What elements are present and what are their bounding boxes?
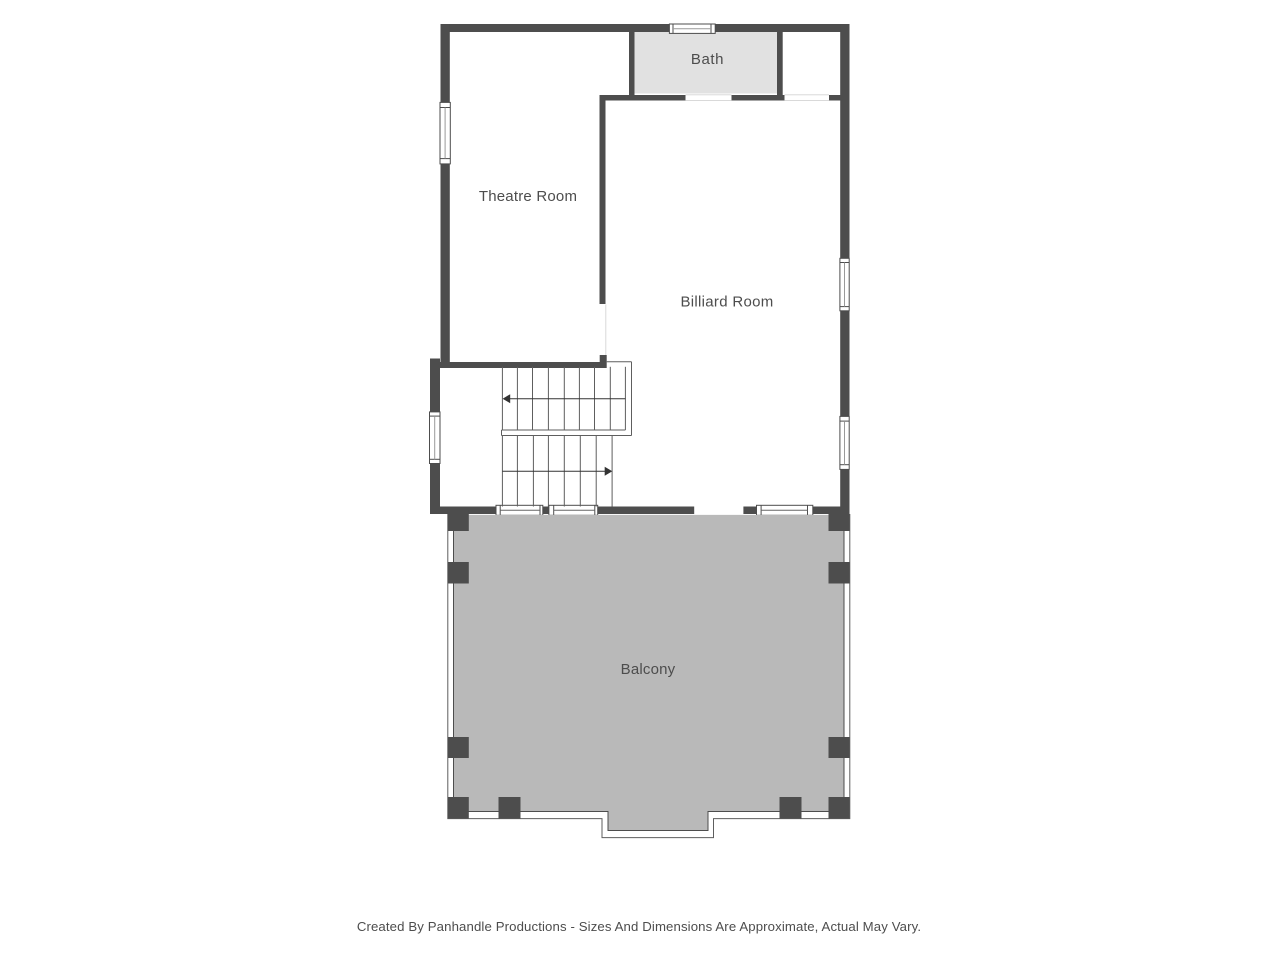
svg-text:Billiard Room: Billiard Room bbox=[680, 294, 773, 311]
svg-text:Theatre Room: Theatre Room bbox=[479, 188, 577, 205]
svg-text:Created By Panhandle Productio: Created By Panhandle Productions - Sizes… bbox=[357, 919, 921, 934]
svg-text:Bath: Bath bbox=[691, 51, 724, 68]
svg-text:Balcony: Balcony bbox=[621, 661, 676, 678]
